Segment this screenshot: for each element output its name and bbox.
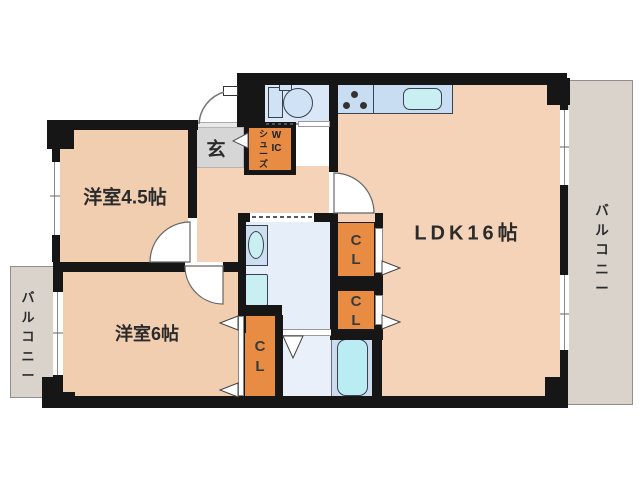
door-arc-room-45	[150, 222, 190, 262]
ldk-label: LDK16帖	[414, 217, 521, 246]
closet-3-label: CL	[253, 337, 267, 377]
floorplan-canvas: 洋室4.5帖 洋室6帖 LDK16帖 玄 シューズ WIC CL CL CL バ…	[0, 0, 640, 480]
balcony-left-label: バルコニー	[20, 288, 36, 386]
shoe-closet-label: シューズ WIC	[249, 129, 291, 171]
closet-2-label: CL	[349, 292, 363, 330]
balcony-right-label: バルコニー	[594, 201, 610, 299]
shoe-closet-shoes-label: シューズ	[259, 129, 269, 171]
room-6-label: 洋室6帖	[115, 320, 179, 346]
closet-3-arrow-icon	[220, 383, 238, 397]
room-45-label: 洋室4.5帖	[83, 183, 166, 210]
door-arc-room-6	[185, 266, 223, 304]
closet-2-arrow-icon	[382, 315, 400, 329]
door-arc-ldk	[334, 173, 374, 213]
symbol-overlay	[0, 0, 640, 480]
closet-1-label: CL	[349, 231, 363, 269]
closet-3-arrow-icon	[220, 316, 238, 330]
entrance-label: 玄	[206, 135, 225, 162]
shoe-closet-wic-label: WIC	[272, 129, 282, 171]
entrance-step-arrow-icon	[233, 133, 248, 148]
door-arc-entrance	[199, 92, 224, 124]
bath-door-icon	[283, 336, 303, 358]
closet-1-arrow-icon	[382, 261, 400, 275]
